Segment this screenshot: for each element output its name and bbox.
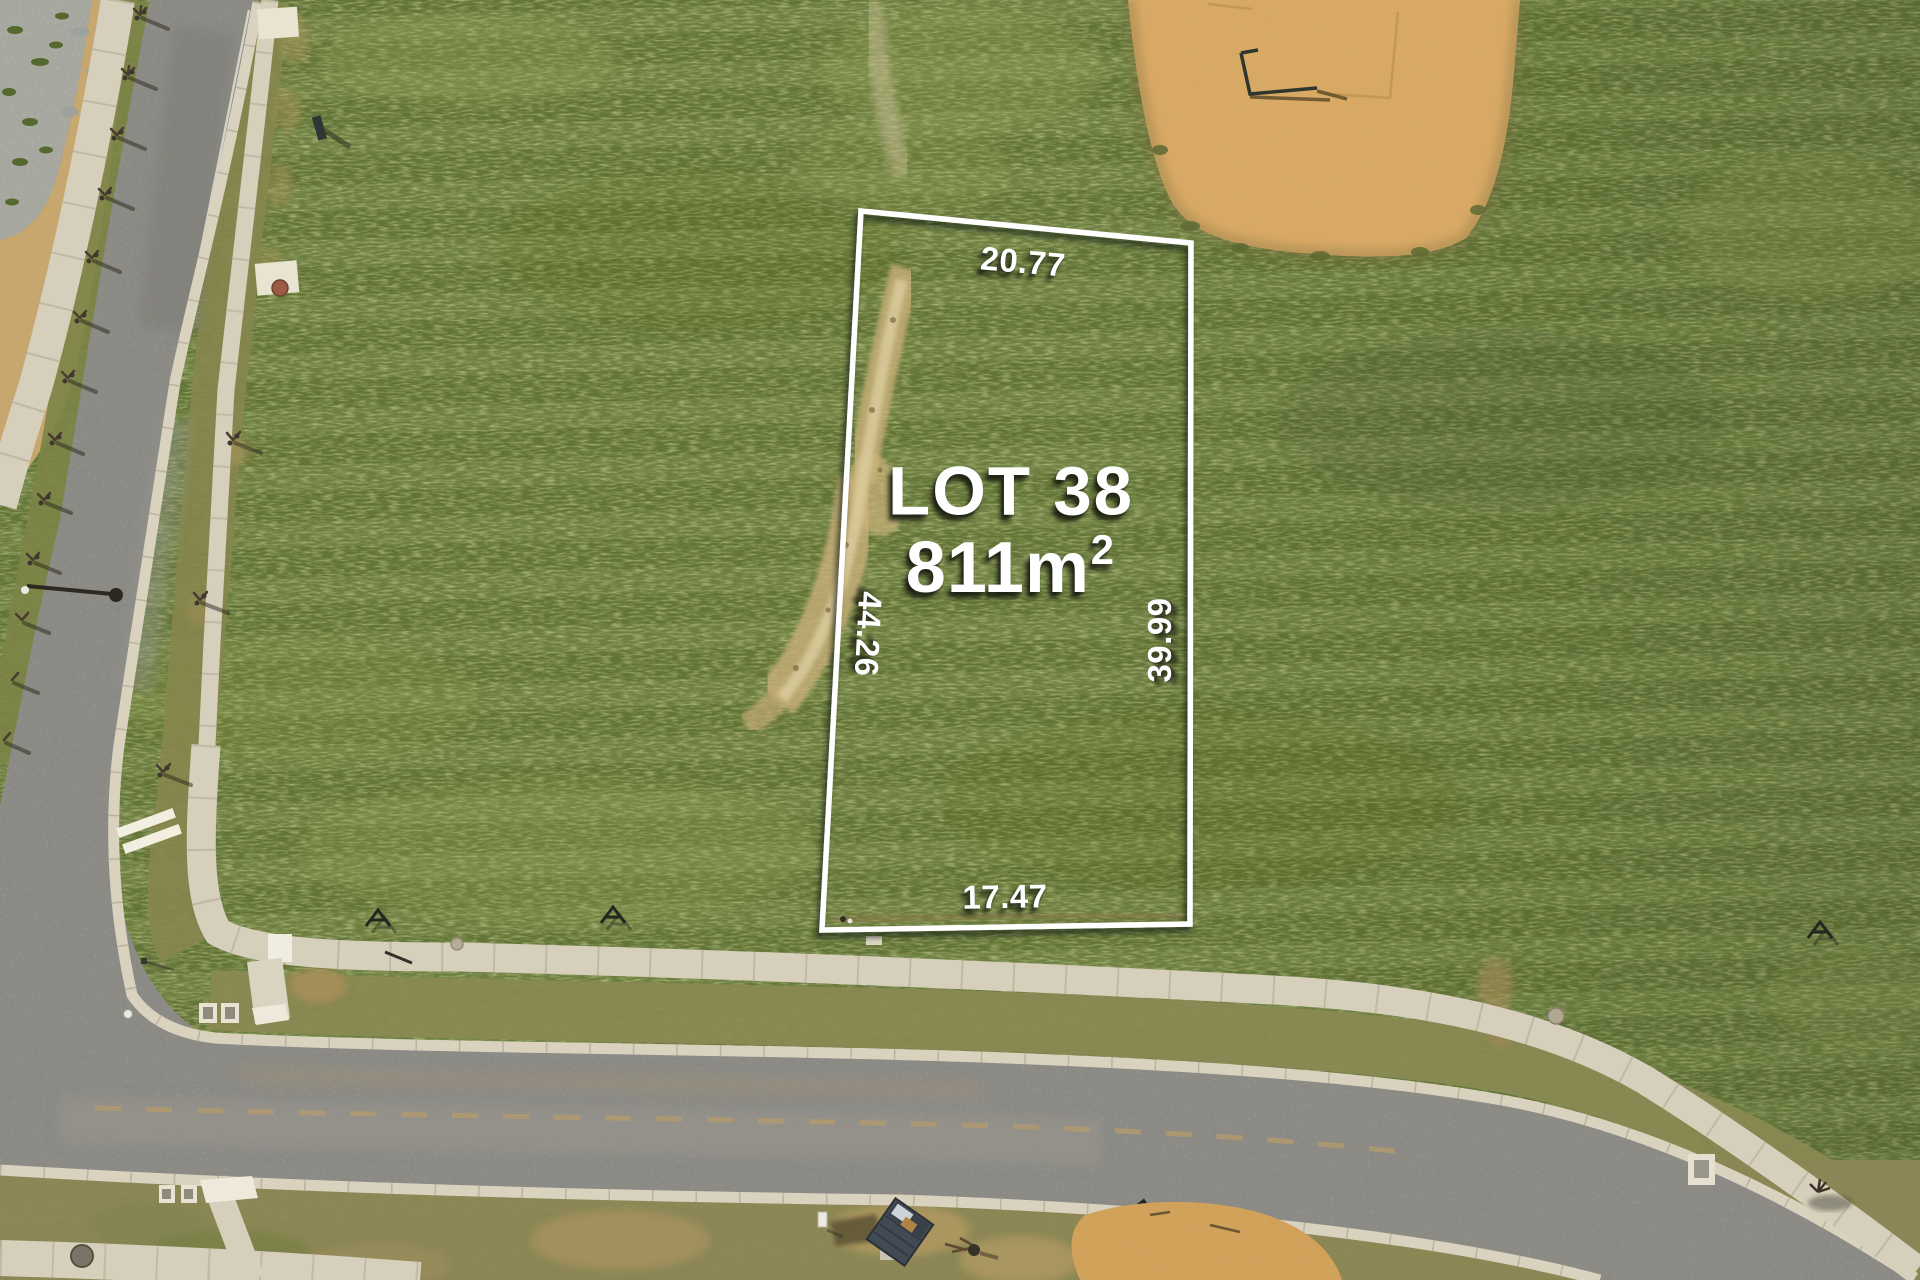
dimension-left-label: 44.26 xyxy=(847,591,889,678)
dimension-right-label: 39.99 xyxy=(1141,597,1179,682)
dimension-bottom-label: 17.47 xyxy=(962,877,1048,916)
lot-area-value: 811m xyxy=(906,528,1090,608)
aerial-lot-photo: LOT 38 811m2 20.77 17.47 44.26 39.99 xyxy=(0,0,1920,1280)
dimension-top-label: 20.77 xyxy=(979,239,1067,284)
lot-area-label: 811m2 xyxy=(906,527,1114,609)
lot-number-label: LOT 38 xyxy=(888,452,1134,531)
sand-area xyxy=(1128,0,1520,261)
aerial-scene xyxy=(0,0,1920,1280)
lot-area-superscript: 2 xyxy=(1091,526,1115,573)
